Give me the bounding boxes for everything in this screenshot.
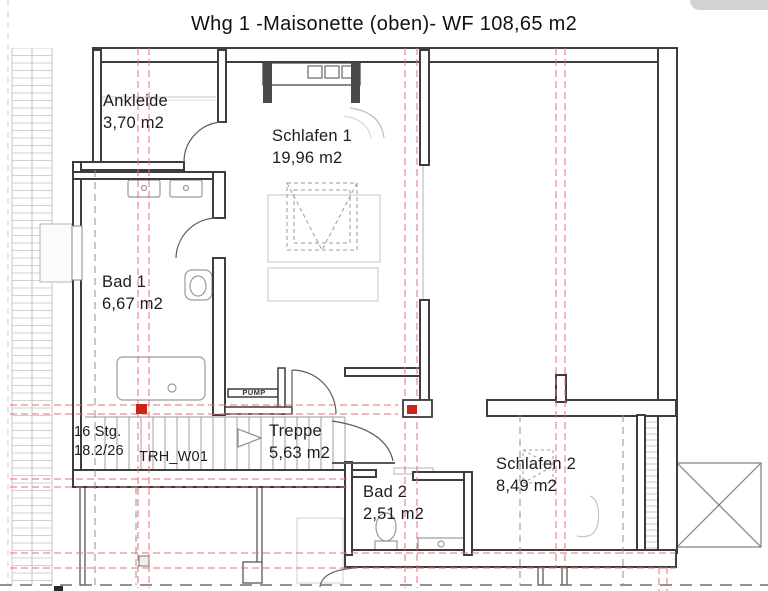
room-area: 3,70 m2: [103, 112, 168, 134]
door-bad1: [176, 218, 217, 258]
skylight-schlafen1: [287, 183, 357, 250]
room-label-schlafen1: Schlafen 1 19,96 m2: [272, 125, 352, 169]
door-ankleide: [184, 122, 222, 162]
shaft-cross-box: [677, 463, 761, 547]
room-label-bad1: Bad 1 6,67 m2: [102, 271, 163, 315]
stair-riser-tread: 18.2/26: [74, 442, 124, 461]
room-name: Ankleide: [103, 92, 168, 110]
room-name: Schlafen 1: [272, 127, 352, 145]
stair-steps: 16 Stg.: [74, 424, 121, 440]
pump-label: PUMP: [231, 388, 277, 397]
wardrobe-schlafen1: [263, 63, 360, 103]
door-schlafen2: [332, 421, 395, 463]
room-area: 5,63 m2: [269, 442, 330, 464]
room-area: 2,51 m2: [363, 503, 424, 525]
room-name: Bad 2: [363, 483, 407, 501]
plan-title: Whg 1 -Maisonette (oben)- WF 108,65 m2: [0, 13, 768, 36]
room-area: 6,67 m2: [102, 293, 163, 315]
roof-hatch-left: [8, 0, 72, 585]
room-label-schlafen2: Schlafen 2 8,49 m2: [496, 453, 576, 497]
floorplan-page: Whg 1 -Maisonette (oben)- WF 108,65 m2 A…: [0, 0, 768, 591]
room-area: 19,96 m2: [272, 147, 352, 169]
room-label-treppe: Treppe 5,63 m2: [269, 420, 330, 464]
room-name: Treppe: [269, 422, 322, 440]
room-area: 8,49 m2: [496, 475, 576, 497]
room-label-ankleide: Ankleide 3,70 m2: [103, 90, 168, 134]
door-schlafen1: [292, 370, 336, 414]
room-label-bad2: Bad 2 2,51 m2: [363, 481, 424, 525]
stair-id: TRH_W01: [139, 449, 208, 465]
stair-note: 16 Stg. 18.2/26: [74, 423, 124, 461]
room-name: Bad 1: [102, 273, 146, 291]
stair-id-label: TRH_W01: [139, 448, 208, 467]
room-name: Schlafen 2: [496, 455, 576, 473]
